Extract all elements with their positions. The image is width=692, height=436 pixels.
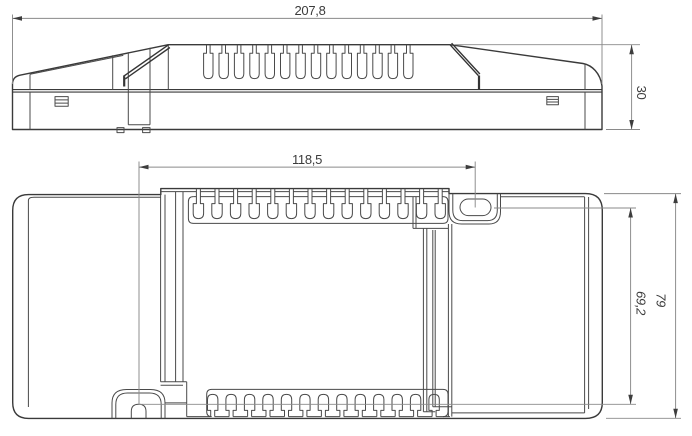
vent-slot-lines	[204, 45, 413, 79]
wire-channel-left	[161, 192, 187, 417]
plan-inner-walls	[28, 197, 588, 413]
plan-vent-slots-bottom	[187, 394, 450, 416]
mounting-grille-left	[55, 97, 68, 107]
side-view-outline	[13, 45, 603, 130]
cable-notch	[131, 404, 146, 418]
lid-seam-line	[13, 90, 603, 93]
vent-slab-bottom	[207, 389, 448, 416]
dimension-label-feature-spacing: 118,5	[292, 152, 322, 167]
dimension-label-hole-to-notch: 69,2	[634, 291, 649, 316]
vent-slot-lines	[208, 394, 440, 416]
dimension-hole-to-notch: 69,2	[139, 208, 649, 404]
wire-channel-right	[413, 197, 452, 417]
dimension-arrowhead	[466, 165, 476, 170]
plan-view	[13, 189, 603, 419]
dimension-arrowhead	[139, 165, 149, 170]
cable-clamp	[113, 45, 170, 133]
dimension-arrowhead	[13, 16, 23, 21]
dimension-overall-height: 30	[455, 45, 649, 130]
clamp-chamfer-left	[123, 45, 170, 79]
dimension-arrowhead	[593, 16, 603, 21]
dimension-arrowhead	[629, 45, 634, 55]
vent-slot-lines	[193, 189, 445, 219]
drawing-svg: 207,8 30 118,5 69,2 79	[0, 0, 692, 436]
dimension-arrowhead	[673, 194, 678, 204]
side-view	[13, 43, 603, 132]
mounting-grille-right	[547, 97, 559, 105]
technical-drawing-canvas: 207,8 30 118,5 69,2 79	[0, 0, 692, 436]
dimension-arrowhead	[628, 208, 633, 218]
dimension-arrowhead	[673, 409, 678, 419]
top-chamfer-right	[450, 43, 480, 89]
dimension-label-overall-length: 207,8	[294, 3, 325, 18]
dimension-arrowhead	[629, 120, 634, 130]
side-vent-slots	[204, 45, 413, 79]
dimension-label-overall-height: 30	[634, 86, 649, 100]
dimension-arrowhead	[628, 395, 633, 405]
plan-vent-slots-top	[161, 189, 449, 219]
dimension-overall-length: 207,8	[13, 3, 603, 84]
vent-slab-top	[188, 197, 448, 224]
dimension-label-overall-width: 79	[654, 293, 669, 307]
dimension-feature-spacing: 118,5	[139, 152, 475, 404]
